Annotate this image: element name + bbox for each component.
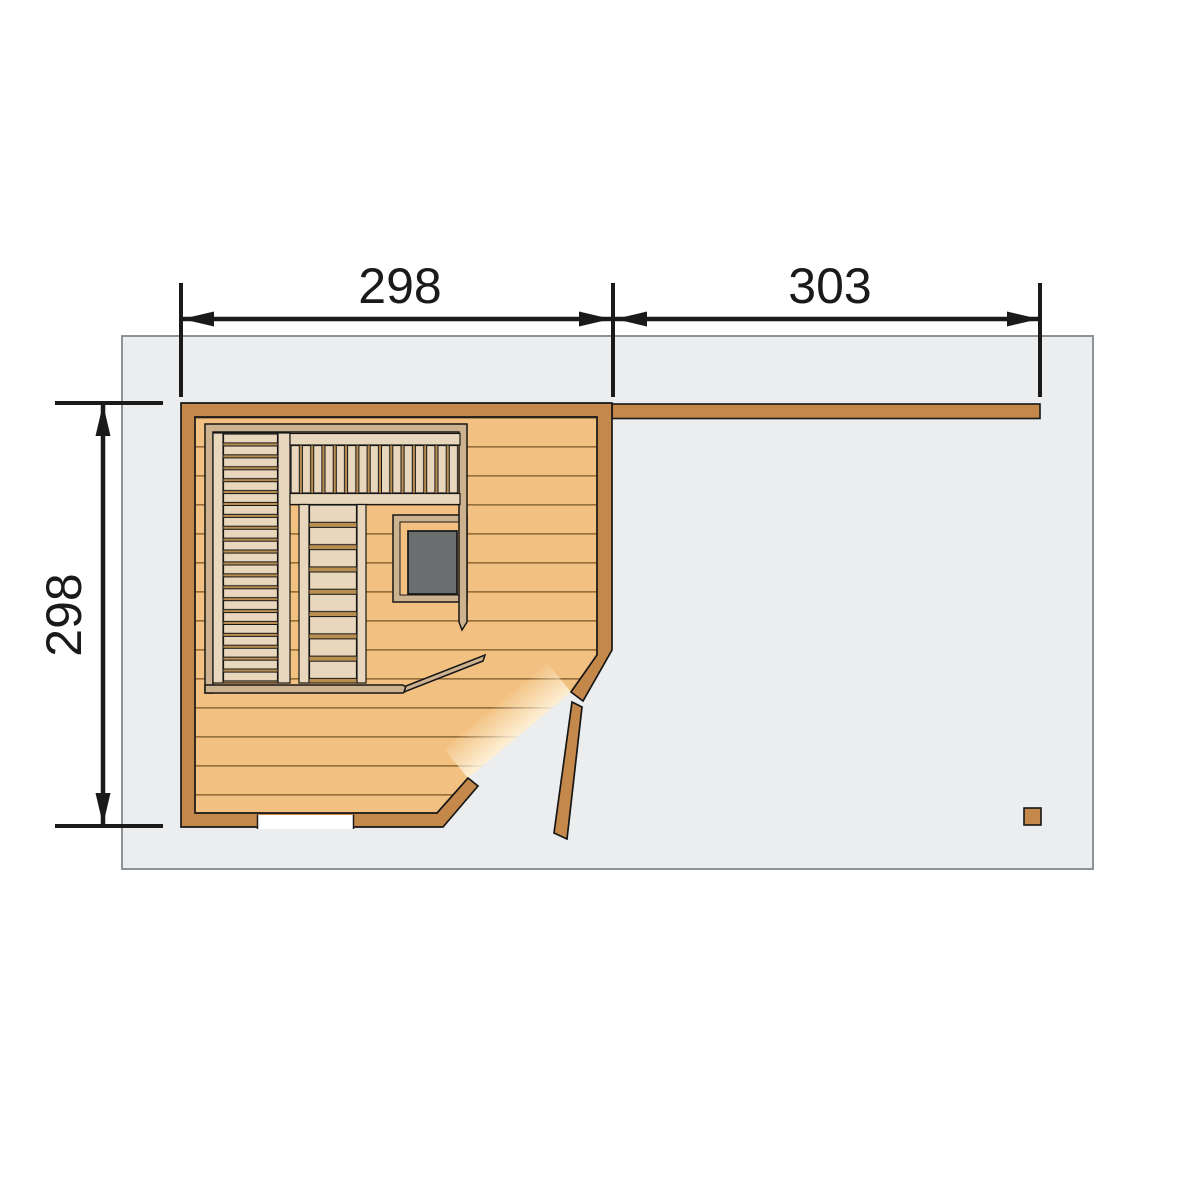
dim-arrow-mid-right — [615, 312, 647, 327]
bench-left-slats — [223, 433, 278, 683]
bench-middle-slats — [309, 505, 357, 684]
wall-window — [257, 815, 354, 829]
sauna-room-wall-bottom — [205, 685, 409, 693]
bench-top-rail-upper — [290, 434, 460, 446]
support-post — [1024, 808, 1041, 825]
bench-left-rail — [213, 433, 223, 683]
dim-arrow-mid-left — [579, 312, 611, 327]
roof-beam — [612, 404, 1040, 419]
bench-middle — [299, 505, 366, 684]
dim-label-depth: 298 — [36, 573, 92, 656]
dim-arrow-down — [96, 793, 111, 825]
dim-arrow-left — [182, 312, 214, 327]
floor-plan-page: 298 303 298 — [0, 0, 1200, 1200]
bench-top-rail-lower — [290, 494, 460, 505]
dim-arrow-right — [1007, 312, 1039, 327]
bench-middle-rail-left — [299, 505, 309, 684]
sauna-heater — [408, 531, 457, 594]
bench-left-rail-right — [278, 433, 290, 683]
bench-top — [290, 434, 460, 505]
dim-label-width-left: 298 — [358, 258, 441, 314]
dim-label-width-right: 303 — [788, 258, 871, 314]
bench-left — [213, 433, 290, 683]
floor-plan-svg: 298 303 298 — [0, 0, 1200, 1200]
dim-arrow-up — [96, 404, 111, 436]
bench-middle-rail-right — [357, 505, 366, 684]
bench-top-slats — [290, 445, 459, 494]
